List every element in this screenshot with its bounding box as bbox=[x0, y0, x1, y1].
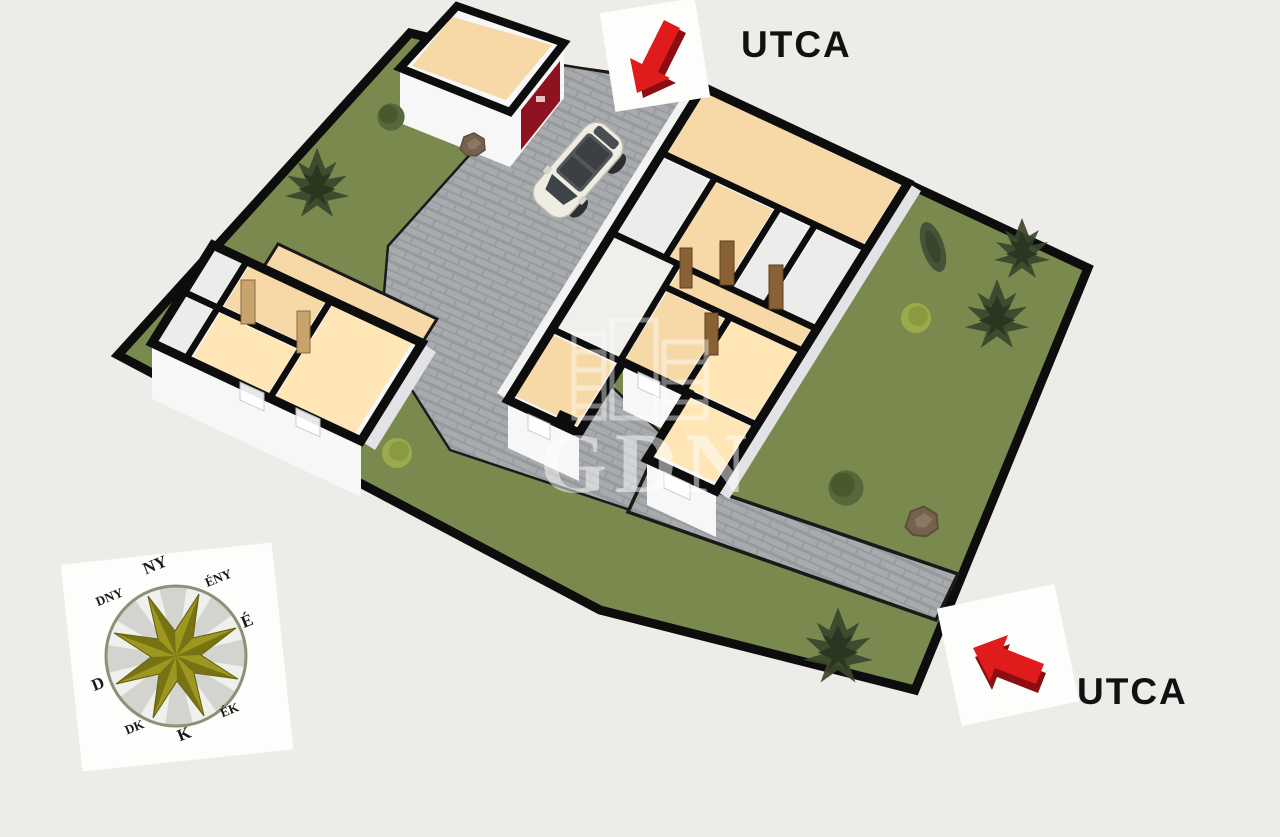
street-label-top: UTCA bbox=[741, 24, 852, 65]
site-plan-svg: GDN É ÉK bbox=[0, 0, 1280, 837]
left-building-door-icon bbox=[297, 311, 310, 353]
bush-icon bbox=[382, 438, 412, 468]
left-building-door-icon bbox=[241, 280, 255, 324]
bush-icon bbox=[377, 103, 404, 130]
bush-icon bbox=[901, 303, 931, 333]
interior-door-icon bbox=[769, 265, 783, 309]
interior-door-icon bbox=[680, 248, 692, 288]
interior-door-icon bbox=[720, 241, 734, 285]
garage-door-emblem bbox=[536, 96, 545, 102]
watermark-text: GDN bbox=[540, 415, 755, 511]
street-label-bottom: UTCA bbox=[1077, 671, 1188, 712]
compass: É ÉK K DK D DNY NY ÉNY bbox=[61, 542, 294, 771]
street-arrow-top bbox=[600, 0, 710, 112]
street-arrow-bottom bbox=[937, 584, 1079, 726]
floorplan-scene: GDN É ÉK bbox=[0, 0, 1280, 837]
bush-icon bbox=[828, 470, 863, 505]
